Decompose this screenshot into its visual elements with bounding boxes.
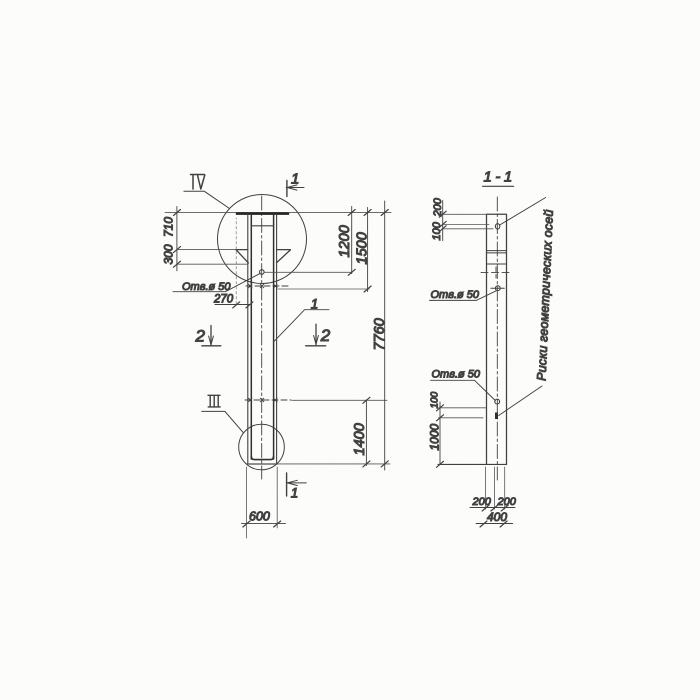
svg-text:710: 710 bbox=[162, 217, 176, 237]
svg-text:1200: 1200 bbox=[337, 225, 353, 257]
svg-text:1: 1 bbox=[311, 297, 319, 312]
svg-text:Отв.ø 50: Отв.ø 50 bbox=[431, 289, 480, 301]
svg-text:7760: 7760 bbox=[372, 318, 388, 350]
svg-text:1: 1 bbox=[291, 171, 299, 188]
svg-text:Отв.ø 50: Отв.ø 50 bbox=[182, 281, 231, 293]
svg-text:1: 1 bbox=[291, 486, 299, 501]
svg-text:Риски геометрических осей: Риски геометрических осей bbox=[535, 209, 556, 381]
svg-text:200: 200 bbox=[472, 496, 492, 508]
svg-text:100: 100 bbox=[431, 221, 443, 240]
svg-text:200: 200 bbox=[432, 197, 444, 217]
svg-text:270: 270 bbox=[213, 294, 234, 306]
svg-text:2: 2 bbox=[320, 326, 331, 345]
svg-text:Отв.ø 50: Отв.ø 50 bbox=[432, 369, 481, 381]
svg-text:1-1: 1-1 bbox=[484, 169, 516, 186]
svg-text:400: 400 bbox=[487, 510, 507, 524]
svg-text:300: 300 bbox=[162, 244, 176, 264]
svg-text:1000: 1000 bbox=[427, 423, 441, 450]
svg-text:600: 600 bbox=[249, 510, 270, 524]
svg-text:1500: 1500 bbox=[354, 232, 370, 264]
svg-text:2: 2 bbox=[195, 327, 206, 346]
svg-text:1400: 1400 bbox=[352, 423, 368, 455]
svg-text:100: 100 bbox=[429, 391, 440, 408]
svg-text:200: 200 bbox=[497, 496, 517, 508]
